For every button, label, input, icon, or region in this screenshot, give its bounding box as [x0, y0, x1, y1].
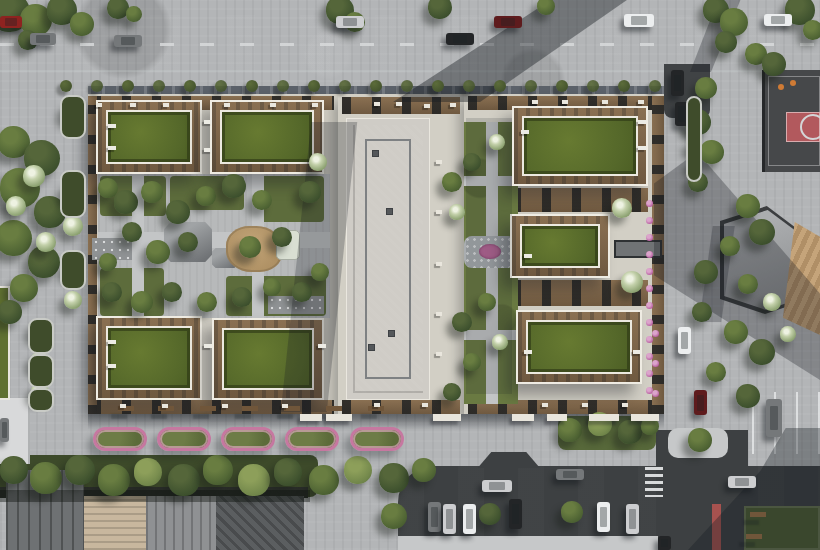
tree [23, 165, 45, 187]
tree [239, 236, 261, 258]
tree [762, 52, 786, 76]
verge-bush [60, 80, 72, 92]
tree [309, 465, 339, 495]
entrance-canopy [631, 414, 659, 421]
magenta-flowers [652, 360, 659, 367]
tree [65, 455, 95, 485]
magenta-flowers [646, 268, 653, 275]
magenta-flowers [646, 285, 653, 292]
tree [166, 200, 190, 224]
car [626, 504, 639, 534]
terrace-furniture [222, 404, 228, 408]
terrace-furniture [622, 403, 628, 407]
tree [238, 464, 270, 496]
terrace-furniture [436, 262, 442, 266]
magenta-flowers [652, 330, 659, 337]
terrace-furniture [602, 100, 608, 104]
planter-bed [60, 250, 86, 290]
roof-vent [372, 150, 379, 157]
verge-bush [432, 80, 444, 92]
tree [99, 253, 117, 271]
tree [561, 501, 583, 523]
car [0, 16, 22, 28]
tree [688, 428, 712, 452]
terrace-furniture [542, 403, 548, 407]
car [446, 33, 474, 45]
terrace-furniture [436, 312, 442, 316]
tree [736, 384, 760, 408]
terrace-furniture [96, 103, 102, 107]
car [764, 14, 792, 26]
tree [780, 326, 796, 342]
terrace-furniture [582, 403, 588, 407]
bench [326, 406, 342, 411]
verge-bush [277, 80, 289, 92]
roof-vent [386, 208, 393, 215]
car [597, 502, 610, 532]
tree [0, 220, 32, 256]
tree [452, 312, 472, 332]
car [556, 469, 584, 480]
verge-bush [184, 80, 196, 92]
tree [311, 263, 329, 281]
tree [803, 20, 820, 40]
roof-lounger [204, 344, 212, 348]
tree [0, 300, 22, 324]
magenta-flowers [646, 336, 653, 343]
entrance-canopy [300, 414, 322, 421]
tree [263, 278, 281, 296]
car [509, 499, 522, 529]
tree [558, 418, 582, 442]
tree [344, 456, 372, 484]
tree [98, 464, 130, 496]
scene-sprites [0, 0, 820, 550]
terrace-furniture [638, 100, 644, 104]
terrace-furniture [422, 403, 428, 407]
verge-bush [91, 80, 103, 92]
tree [749, 339, 775, 365]
tree [292, 282, 312, 302]
tree [489, 134, 505, 150]
terrace-furniture [163, 103, 169, 107]
roof-lounger [204, 120, 212, 124]
magenta-flowers [646, 353, 653, 360]
court-player-figure [790, 80, 796, 86]
magenta-flowers [646, 319, 653, 326]
tree [131, 291, 153, 313]
tree [141, 181, 163, 203]
bench [200, 406, 216, 411]
verge-bush [246, 80, 258, 92]
tree [700, 140, 724, 164]
tree [114, 190, 138, 214]
entrance-canopy [433, 414, 461, 421]
entrance-canopy [326, 414, 352, 421]
tree [412, 458, 436, 482]
tree [736, 194, 760, 218]
tree [463, 353, 481, 371]
tree [695, 77, 717, 99]
bench [746, 534, 762, 539]
verge-bush [649, 80, 661, 92]
tree [274, 458, 302, 486]
car [463, 504, 476, 534]
terrace-furniture [436, 160, 442, 164]
planter-bed [28, 388, 54, 412]
tree [694, 260, 718, 284]
car [728, 476, 756, 488]
terrace-furniture [224, 103, 230, 107]
tree [102, 282, 122, 302]
roof-lounger [524, 254, 532, 258]
terrace-furniture [424, 104, 430, 108]
verge-bush [463, 80, 475, 92]
tree [197, 292, 217, 312]
planter-bed [28, 318, 54, 354]
terrace-furniture [562, 100, 568, 104]
tree [706, 362, 726, 382]
verge-bush [401, 80, 413, 92]
car [114, 35, 142, 47]
tree [449, 204, 465, 220]
tree [479, 503, 501, 525]
entrance-canopy [589, 414, 619, 421]
tree [70, 12, 94, 36]
entrance-canopy [547, 414, 567, 421]
magenta-flowers [646, 370, 653, 377]
tree [379, 463, 409, 493]
car [443, 504, 456, 534]
tree [738, 274, 758, 294]
car [671, 70, 684, 96]
verge-bush [153, 80, 165, 92]
tree [442, 172, 462, 192]
car [30, 33, 56, 45]
car [694, 390, 707, 415]
tree [724, 320, 748, 344]
roof-lounger [108, 340, 116, 344]
terrace-furniture [270, 103, 276, 107]
roof-lounger [108, 124, 116, 128]
verge-bush [494, 80, 506, 92]
car [482, 480, 512, 492]
tree [537, 0, 555, 15]
magenta-flowers [646, 217, 653, 224]
verge-bush [525, 80, 537, 92]
magenta-flowers [646, 302, 653, 309]
tree [203, 455, 233, 485]
court-player-figure [778, 84, 784, 90]
roof-lounger [638, 120, 646, 124]
roof-vent [388, 330, 395, 337]
tree [463, 153, 481, 171]
terrace-furniture [532, 100, 538, 104]
car [428, 502, 441, 532]
magenta-flowers [652, 390, 659, 397]
terrace-furniture [396, 102, 402, 106]
tree [381, 503, 407, 529]
car [766, 399, 782, 437]
entrance-canopy [512, 414, 534, 421]
tree [621, 271, 643, 293]
tree [272, 227, 292, 247]
tree [492, 334, 508, 350]
roof-vent [368, 344, 375, 351]
tree [692, 302, 712, 322]
tree [715, 31, 737, 53]
flower-bed [350, 427, 404, 451]
tree [252, 190, 272, 210]
tree [443, 383, 461, 401]
terrace-furniture [162, 404, 168, 408]
terrace-furniture [130, 103, 136, 107]
roof-lounger [633, 350, 641, 354]
tree [126, 6, 142, 22]
car [336, 16, 364, 28]
terrace-furniture [436, 352, 442, 356]
car [0, 418, 9, 442]
tree [232, 287, 252, 307]
flower-bed [157, 427, 211, 451]
tree [36, 232, 56, 252]
tree [63, 216, 83, 236]
terrace-furniture [374, 102, 380, 106]
car [624, 14, 654, 27]
aerial-render-scene [0, 0, 820, 550]
tree [146, 240, 170, 264]
magenta-flowers [646, 234, 653, 241]
roof-lounger [638, 146, 646, 150]
roof-lounger [204, 148, 212, 152]
roof-lounger [108, 146, 116, 150]
flower-bed [285, 427, 339, 451]
tree [720, 236, 740, 256]
tree [196, 186, 216, 206]
tree [10, 274, 38, 302]
terrace-furniture [436, 210, 442, 214]
verge-bush [618, 80, 630, 92]
planter-bed [60, 95, 86, 139]
tree [222, 174, 246, 198]
tree [134, 458, 162, 486]
verge-bush [308, 80, 320, 92]
tree [618, 420, 642, 444]
magenta-flowers [646, 251, 653, 258]
tree [749, 219, 775, 245]
tree [162, 282, 182, 302]
terrace-furniture [450, 103, 456, 107]
roof-lounger [318, 344, 326, 348]
tree [478, 293, 496, 311]
planter-bed [686, 96, 702, 182]
verge-bush [215, 80, 227, 92]
terrace-furniture [312, 103, 318, 107]
verge-bush [587, 80, 599, 92]
verge-bush [370, 80, 382, 92]
car [678, 327, 691, 354]
tree [30, 462, 62, 494]
tree [0, 456, 28, 484]
tree [612, 198, 632, 218]
roof-lounger [521, 130, 529, 134]
tree [168, 464, 200, 496]
bench [242, 406, 258, 411]
terrace-furniture [282, 404, 288, 408]
car [658, 536, 671, 550]
flower-bed [221, 427, 275, 451]
car [494, 16, 522, 28]
planter-bed [60, 170, 86, 218]
roof-lounger [108, 364, 116, 368]
tree [64, 291, 82, 309]
verge-bush [339, 80, 351, 92]
tree [763, 293, 781, 311]
verge-bush [122, 80, 134, 92]
bench [750, 512, 766, 517]
tree [122, 222, 142, 242]
terrace-furniture [374, 403, 380, 407]
tree [309, 153, 327, 171]
magenta-flowers [646, 200, 653, 207]
tree [178, 232, 198, 252]
verge-bush [556, 80, 568, 92]
flower-bed [93, 427, 147, 451]
tree [6, 196, 26, 216]
roof-lounger [524, 350, 532, 354]
planter-bed [28, 354, 54, 388]
tree [428, 0, 452, 19]
terrace-furniture [120, 404, 126, 408]
tree [299, 181, 321, 203]
